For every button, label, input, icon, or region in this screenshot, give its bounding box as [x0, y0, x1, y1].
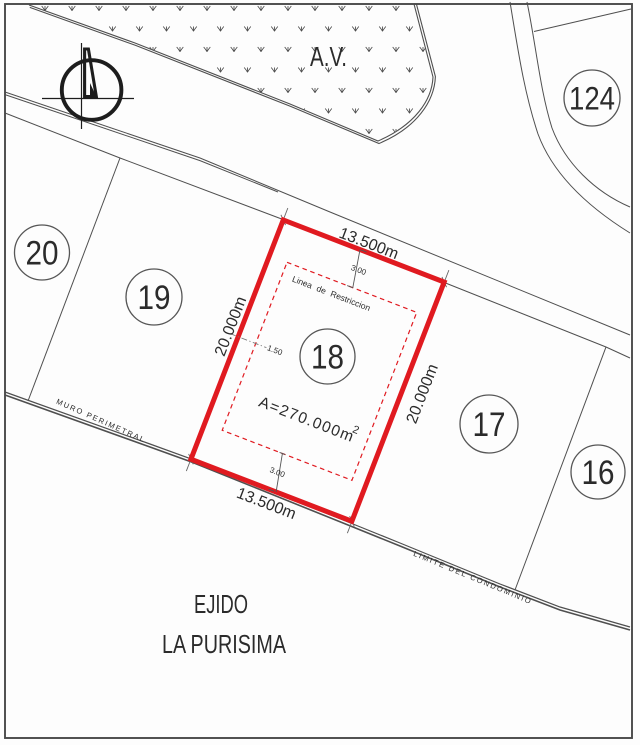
- svg-text:17: 17: [473, 406, 506, 444]
- svg-text:18: 18: [311, 339, 344, 377]
- svg-text:124: 124: [569, 80, 615, 116]
- svg-text:19: 19: [138, 279, 171, 317]
- svg-text:LA PURISIMA: LA PURISIMA: [162, 629, 286, 659]
- svg-text:EJIDO: EJIDO: [194, 589, 248, 619]
- svg-text:A.V.: A.V.: [310, 41, 347, 72]
- svg-text:16: 16: [582, 454, 615, 492]
- svg-text:20: 20: [26, 235, 59, 273]
